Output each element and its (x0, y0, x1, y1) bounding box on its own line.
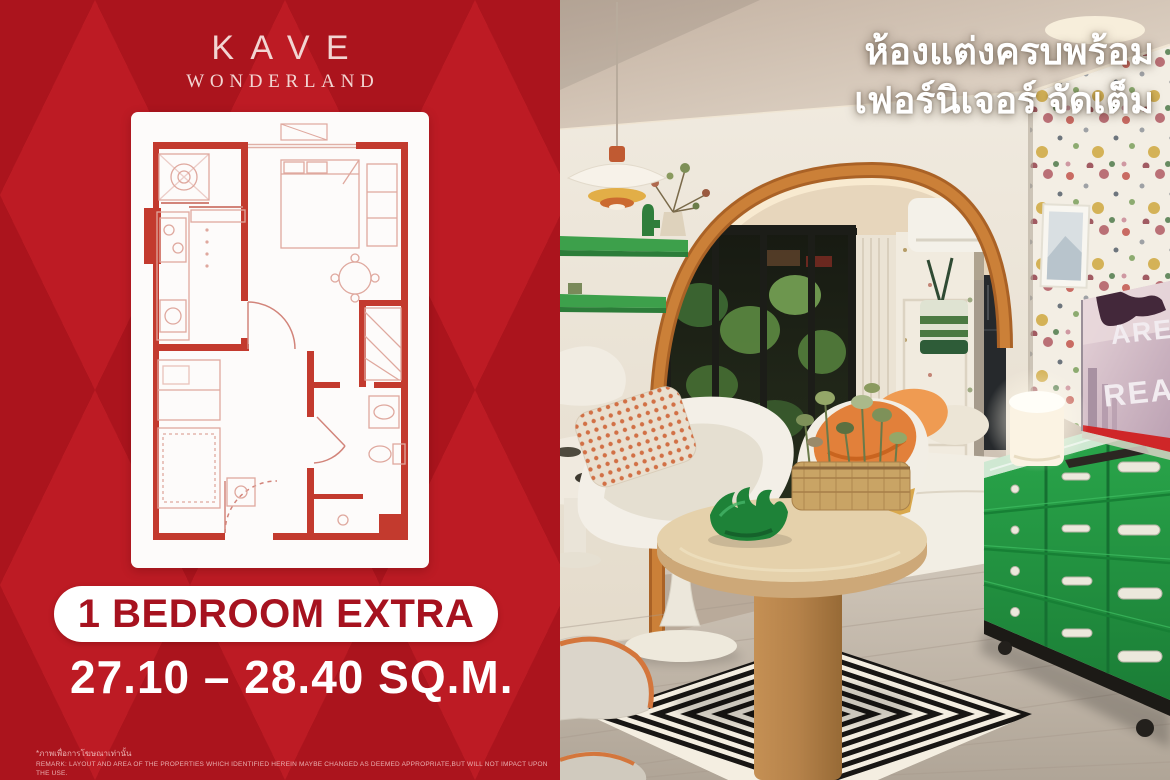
floor-plan-furniture (157, 154, 405, 525)
overlay-caption-line1: ห้องแต่งครบพร้อม (854, 28, 1154, 77)
unit-type-badge: 1 BEDROOM EXTRA (54, 586, 498, 642)
floor-plan-marks (205, 228, 208, 267)
left-panel: KAVE WONDERLAND (0, 0, 560, 780)
tv-text-line1: ARE (1109, 314, 1170, 350)
brand-wordmark-sub: WONDERLAND (0, 71, 560, 93)
brand-name: KAVE (0, 30, 560, 67)
tv-text-line2: REA (1102, 371, 1170, 413)
floor-plan-window (248, 124, 356, 148)
floor-plan (131, 112, 429, 568)
disclaimer: *ภาพเพื่อการโฆษณาเท่านั้น REMARK: LAYOUT… (36, 748, 560, 778)
brand-logo: KAVE WONDERLAND (0, 30, 560, 93)
picture-frame (1041, 204, 1090, 288)
disclaimer-thai: *ภาพเพื่อการโฆษณาเท่านั้น (36, 748, 560, 760)
ad-banner: KAVE WONDERLAND (0, 0, 1170, 780)
unit-type-label: 1 BEDROOM EXTRA (78, 592, 474, 637)
disclaimer-english: REMARK: LAYOUT AND AREA OF THE PROPERTIE… (36, 760, 560, 779)
room-photo: ARE REA ห้องแต่งครบพร้อม เฟอร์นิเจอร์ จั… (560, 0, 1170, 780)
table-lamp (985, 368, 1089, 472)
overlay-caption: ห้องแต่งครบพร้อม เฟอร์นิเจอร์ จัดเต็ม (854, 28, 1154, 126)
unit-area-text: 27.10 – 28.40 SQ.M. (70, 650, 514, 704)
overlay-caption-line2: เฟอร์นิเจอร์ จัดเต็ม (854, 77, 1154, 126)
floor-plan-card (131, 112, 429, 568)
